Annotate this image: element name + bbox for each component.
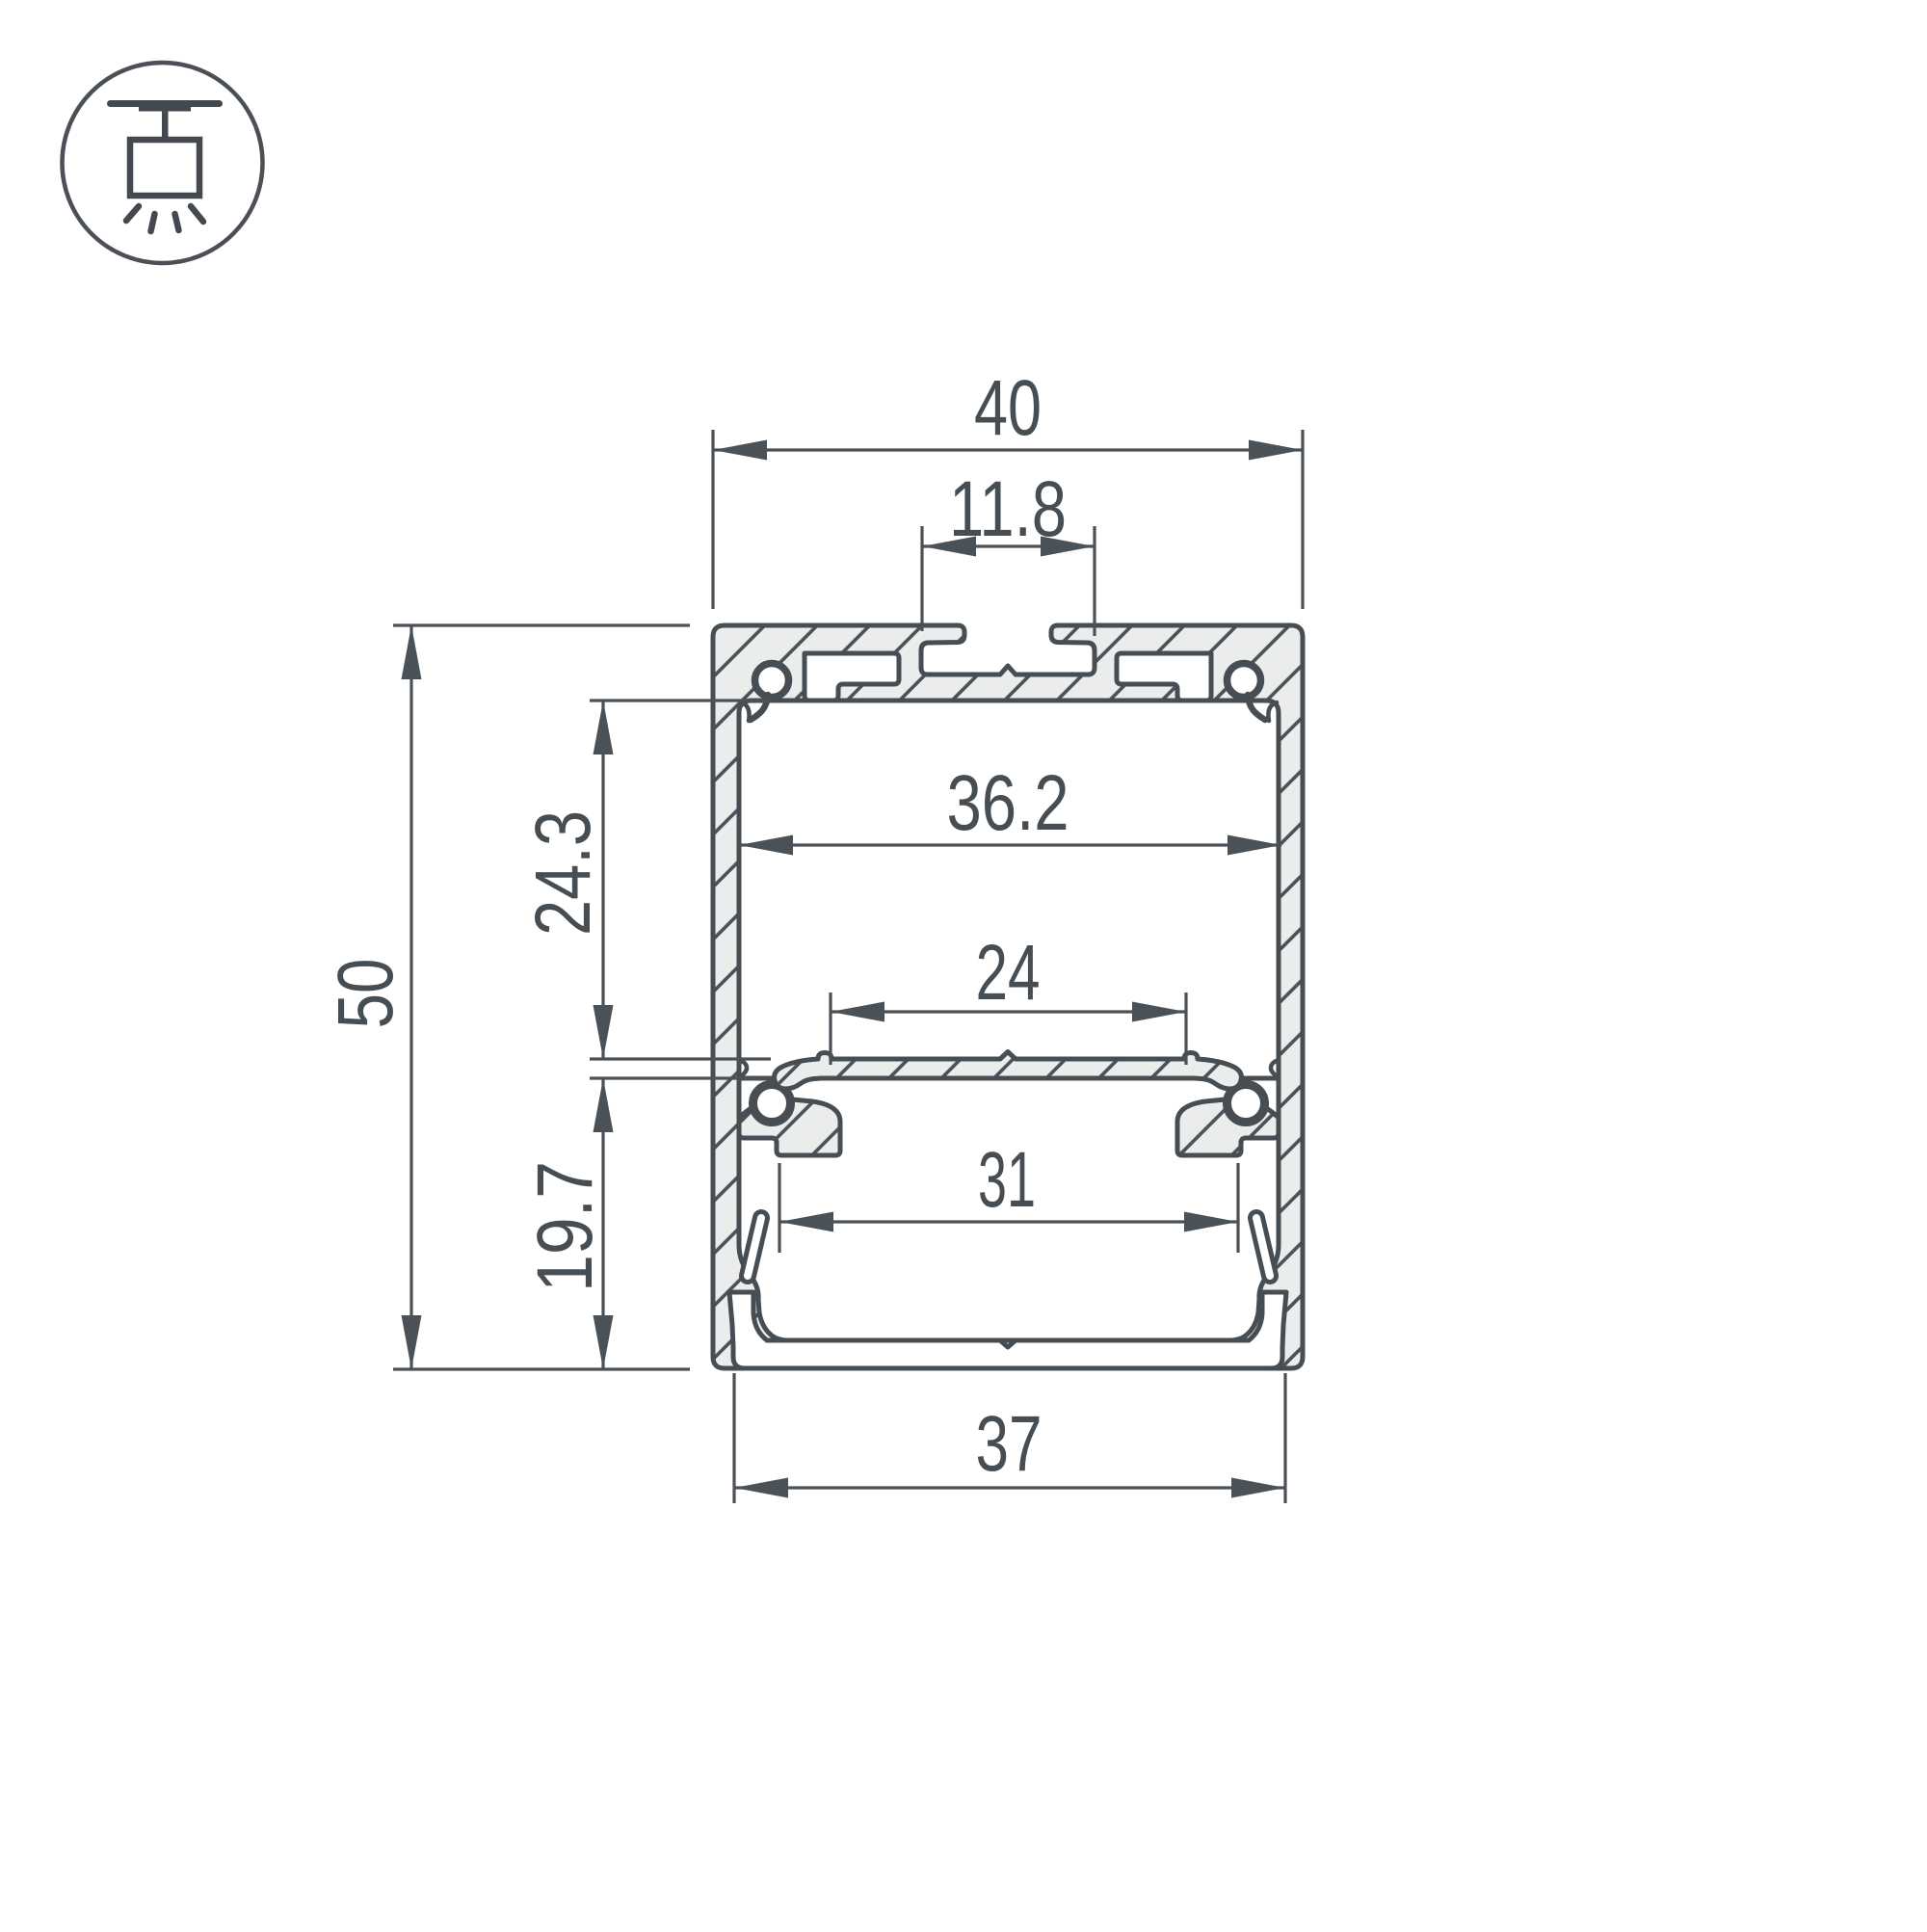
svg-text:31: 31 <box>978 1136 1036 1224</box>
svg-text:36.2: 36.2 <box>947 759 1069 847</box>
svg-text:37: 37 <box>976 1400 1043 1488</box>
svg-text:24.3: 24.3 <box>519 810 607 936</box>
svg-text:50: 50 <box>322 959 409 1029</box>
svg-text:11.8: 11.8 <box>949 465 1067 553</box>
svg-text:40: 40 <box>974 364 1042 452</box>
svg-text:24: 24 <box>976 929 1041 1017</box>
svg-text:19.7: 19.7 <box>521 1161 609 1292</box>
